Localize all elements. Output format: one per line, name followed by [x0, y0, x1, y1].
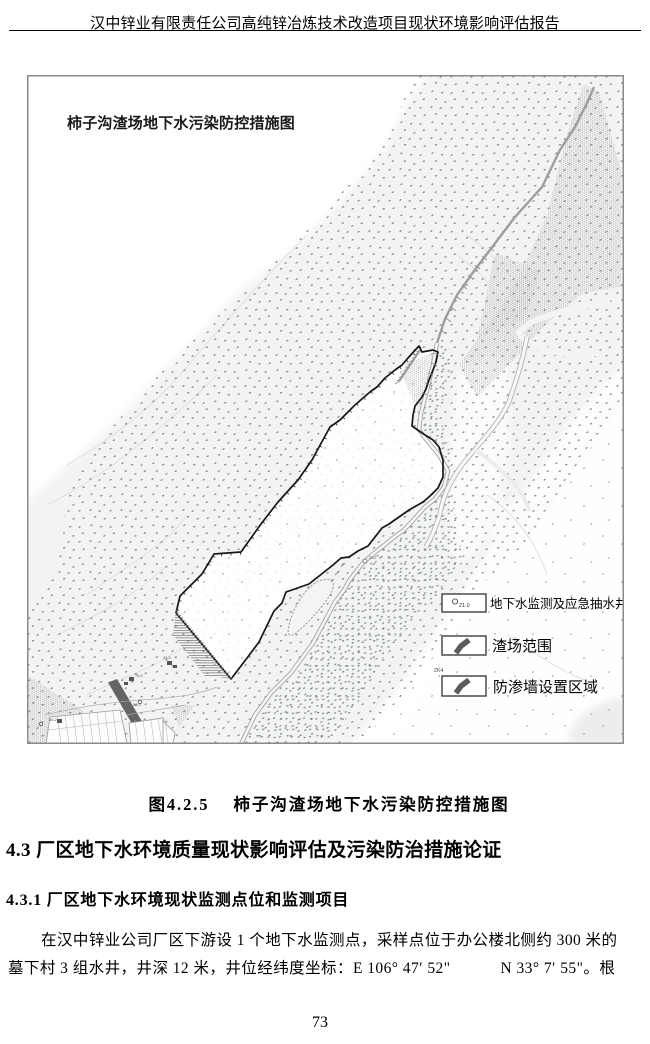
svg-text:36.2: 36.2: [49, 717, 58, 722]
svg-text:柿子沟渣场地下水污染防控措施图: 柿子沟渣场地下水污染防控措施图: [67, 114, 295, 132]
svg-text:21.0: 21.0: [459, 603, 470, 609]
svg-text:ZK2: ZK2: [369, 555, 377, 560]
svg-text:渣场范围: 渣场范围: [492, 638, 552, 655]
svg-text:76.0: 76.0: [135, 673, 144, 678]
svg-text:地下水监测及应急抽水井: 地下水监测及应急抽水井: [490, 596, 624, 611]
svg-text:ZK4: ZK4: [434, 668, 443, 674]
svg-text:防渗墙设置区域: 防渗墙设置区域: [493, 679, 598, 696]
svg-text:24.0: 24.0: [163, 655, 172, 660]
svg-text:50.2: 50.2: [133, 702, 142, 707]
